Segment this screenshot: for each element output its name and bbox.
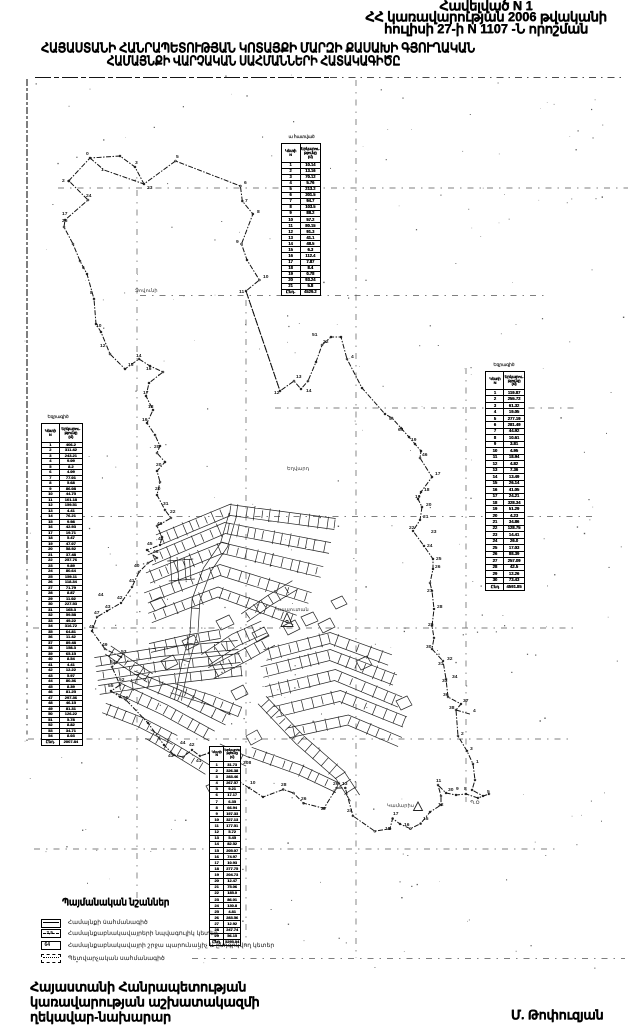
svg-text:46: 46 — [153, 549, 159, 555]
svg-text:Կամարիս: Կամարիս — [387, 803, 414, 809]
svg-text:25: 25 — [62, 218, 68, 224]
svg-text:Զովունի: Զովունի — [135, 288, 158, 294]
svg-text:53: 53 — [121, 649, 127, 655]
svg-text:8: 8 — [257, 209, 260, 215]
svg-text:20: 20 — [154, 444, 160, 450]
svg-text:3: 3 — [470, 746, 473, 752]
svg-text:30: 30 — [426, 644, 432, 650]
svg-text:34: 34 — [452, 674, 458, 680]
svg-text:51: 51 — [312, 332, 318, 338]
svg-text:29: 29 — [333, 781, 339, 787]
svg-text:7: 7 — [245, 198, 248, 204]
svg-text:42: 42 — [189, 742, 195, 748]
svg-text:31: 31 — [163, 501, 169, 507]
svg-text:33: 33 — [442, 678, 448, 684]
svg-text:64: 64 — [398, 427, 404, 433]
svg-text:22: 22 — [409, 525, 415, 531]
svg-text:9: 9 — [456, 786, 459, 792]
svg-text:14: 14 — [136, 353, 142, 359]
svg-text:19: 19 — [411, 437, 417, 443]
svg-text:15: 15 — [128, 362, 134, 368]
svg-text:17: 17 — [62, 211, 68, 217]
svg-text:1: 1 — [476, 759, 479, 765]
svg-text:41: 41 — [129, 578, 135, 584]
svg-text:17: 17 — [393, 811, 399, 817]
svg-text:13: 13 — [342, 781, 348, 787]
svg-text:0: 0 — [86, 151, 89, 157]
svg-text:8: 8 — [464, 786, 467, 792]
svg-text:26: 26 — [435, 564, 441, 570]
svg-text:18: 18 — [424, 487, 430, 493]
svg-text:25: 25 — [436, 556, 442, 562]
svg-text:22: 22 — [170, 509, 176, 515]
svg-text:48: 48 — [89, 624, 95, 630]
svg-text:2: 2 — [461, 731, 464, 737]
svg-text:10: 10 — [96, 323, 102, 329]
svg-text:19: 19 — [415, 494, 421, 500]
svg-text:43: 43 — [168, 753, 174, 759]
svg-text:51: 51 — [110, 659, 116, 665]
svg-text:Պ.Օ: Պ.Օ — [470, 800, 480, 806]
svg-text:19: 19 — [142, 417, 148, 423]
svg-text:17: 17 — [435, 471, 441, 477]
svg-text:20: 20 — [155, 486, 161, 492]
svg-text:41: 41 — [196, 758, 202, 764]
svg-text:55: 55 — [108, 683, 114, 689]
svg-text:28: 28 — [281, 782, 287, 788]
svg-text:4: 4 — [473, 708, 476, 714]
svg-text:6: 6 — [82, 265, 85, 271]
svg-text:40: 40 — [134, 563, 140, 569]
svg-text:40: 40 — [157, 521, 163, 527]
svg-text:24: 24 — [427, 543, 433, 549]
svg-text:24: 24 — [347, 808, 353, 814]
svg-text:4: 4 — [351, 354, 354, 360]
svg-text:12: 12 — [274, 390, 280, 396]
svg-text:20: 20 — [156, 462, 162, 468]
svg-text:18: 18 — [148, 404, 154, 410]
svg-text:9: 9 — [236, 239, 239, 245]
svg-text:24: 24 — [86, 193, 92, 199]
svg-text:28: 28 — [437, 604, 443, 610]
svg-text:12: 12 — [438, 802, 444, 808]
svg-text:8: 8 — [90, 290, 93, 296]
svg-text:1: 1 — [101, 167, 104, 173]
svg-text:308: 308 — [243, 760, 251, 766]
svg-text:22: 22 — [323, 339, 329, 345]
svg-text:43: 43 — [105, 604, 111, 610]
svg-text:38: 38 — [449, 705, 455, 711]
svg-text:10: 10 — [250, 780, 256, 786]
svg-text:14: 14 — [306, 388, 312, 394]
svg-text:16: 16 — [404, 822, 410, 828]
svg-text:23: 23 — [147, 185, 153, 191]
svg-text:46: 46 — [422, 452, 428, 458]
svg-text:21: 21 — [423, 514, 429, 520]
svg-text:31: 31 — [438, 661, 444, 667]
svg-text:26: 26 — [301, 796, 307, 802]
svg-text:23: 23 — [431, 529, 437, 535]
svg-text:49: 49 — [102, 642, 108, 648]
svg-text:32: 32 — [447, 656, 453, 662]
svg-text:37: 37 — [463, 698, 469, 704]
svg-text:11: 11 — [239, 289, 244, 295]
svg-text:52: 52 — [119, 677, 125, 683]
svg-text:27: 27 — [427, 588, 433, 594]
svg-text:18: 18 — [385, 826, 391, 832]
svg-text:2: 2 — [62, 178, 65, 184]
svg-text:42: 42 — [158, 536, 164, 542]
svg-text:Կապուտան: Կապուտան — [276, 607, 309, 613]
svg-text:17: 17 — [143, 390, 149, 396]
svg-text:5: 5 — [389, 416, 392, 422]
svg-text:13: 13 — [296, 374, 302, 380]
svg-text:44: 44 — [180, 740, 186, 746]
svg-text:11: 11 — [436, 778, 441, 784]
svg-text:12: 12 — [100, 343, 106, 349]
svg-text:56: 56 — [123, 695, 129, 701]
svg-text:45: 45 — [147, 541, 153, 547]
svg-text:27: 27 — [321, 806, 327, 812]
svg-text:5: 5 — [176, 154, 179, 160]
svg-text:44: 44 — [98, 592, 104, 598]
svg-text:30: 30 — [448, 787, 454, 793]
svg-text:36: 36 — [443, 692, 449, 698]
svg-text:5: 5 — [487, 789, 490, 795]
svg-text:10: 10 — [263, 274, 269, 280]
svg-text:29: 29 — [428, 622, 434, 628]
svg-text:3: 3 — [135, 160, 138, 166]
svg-text:Եղվարդ: Եղվարդ — [287, 466, 310, 472]
svg-text:42: 42 — [117, 595, 123, 601]
svg-text:6: 6 — [244, 180, 247, 186]
svg-text:47: 47 — [94, 610, 100, 616]
svg-text:16: 16 — [146, 366, 152, 372]
svg-text:15: 15 — [423, 816, 429, 822]
